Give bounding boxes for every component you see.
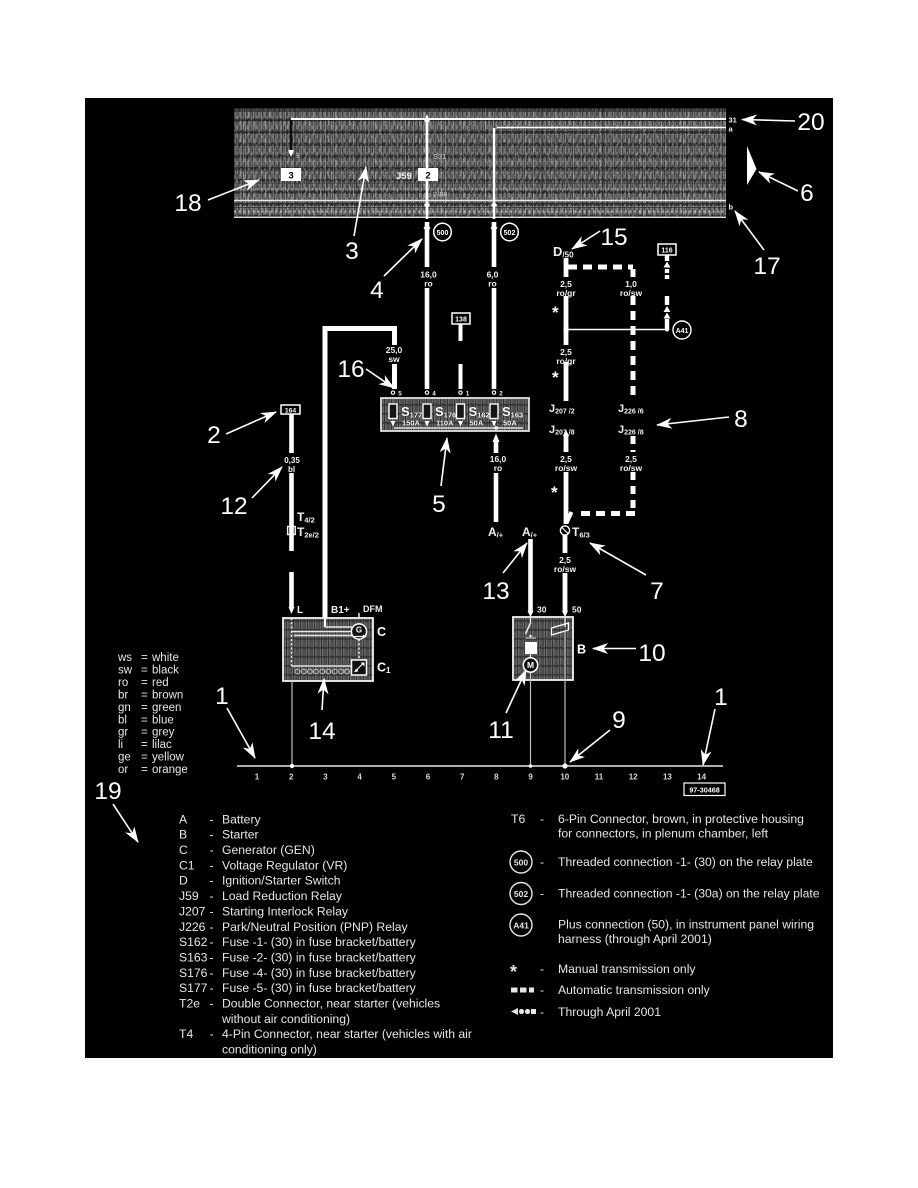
svg-text:138: 138 — [455, 317, 467, 324]
svg-text:10: 10 — [638, 640, 665, 667]
svg-text:A: A — [179, 812, 188, 826]
svg-text:C1: C1 — [179, 858, 195, 872]
svg-text:14: 14 — [308, 718, 335, 745]
svg-text:A41: A41 — [513, 921, 529, 931]
svg-text:blue: blue — [152, 714, 174, 726]
svg-text:8: 8 — [494, 773, 499, 782]
svg-text:-: - — [540, 983, 544, 997]
svg-text:1: 1 — [255, 773, 260, 782]
svg-text:1: 1 — [466, 390, 470, 397]
svg-text:4: 4 — [432, 390, 436, 397]
svg-text:gn: gn — [118, 702, 131, 714]
svg-text:3: 3 — [288, 171, 293, 182]
svg-text:Voltage Regulator (VR): Voltage Regulator (VR) — [222, 858, 347, 872]
svg-text:brown: brown — [152, 689, 183, 701]
svg-text:Double Connector, near starter: Double Connector, near starter (vehicles — [222, 997, 440, 1011]
svg-text:2: 2 — [207, 422, 221, 449]
svg-text:S176: S176 — [179, 966, 208, 980]
svg-text:Battery: Battery — [222, 812, 262, 826]
svg-text:-: - — [210, 920, 214, 934]
svg-text:ro: ro — [424, 279, 433, 289]
svg-text:M: M — [527, 660, 534, 670]
svg-text:502: 502 — [514, 889, 528, 899]
svg-text:ro/sw: ro/sw — [554, 564, 577, 574]
svg-text:ws: ws — [117, 652, 132, 664]
svg-text:50: 50 — [572, 605, 582, 615]
svg-text:=: = — [141, 714, 148, 726]
svg-text:14: 14 — [697, 773, 706, 782]
svg-text:500: 500 — [514, 858, 528, 868]
svg-text:J226: J226 — [179, 920, 206, 934]
svg-text:-: - — [210, 889, 214, 903]
svg-text:1: 1 — [714, 684, 728, 711]
svg-text:50A: 50A — [470, 419, 484, 428]
svg-text:Fuse -5- (30) in fuse bracket/: Fuse -5- (30) in fuse bracket/battery — [222, 981, 417, 995]
svg-text:gr: gr — [118, 727, 128, 739]
svg-text:=: = — [141, 764, 148, 776]
svg-text:conditioning only): conditioning only) — [222, 1043, 317, 1057]
svg-text:Plus connection (50), in instr: Plus connection (50), in instrument pane… — [558, 918, 814, 932]
svg-text:Generator (GEN): Generator (GEN) — [222, 843, 315, 857]
svg-text:ro: ro — [494, 463, 503, 473]
svg-text:*: * — [552, 368, 559, 387]
svg-text:ro: ro — [488, 279, 497, 289]
svg-text:Automatic transmission only: Automatic transmission only — [558, 983, 711, 997]
svg-text:-: - — [210, 904, 214, 918]
svg-text:9: 9 — [528, 773, 533, 782]
svg-text:4: 4 — [370, 277, 384, 304]
svg-text:-: - — [210, 935, 214, 949]
svg-text:li: li — [118, 739, 123, 751]
svg-text:J59: J59 — [396, 171, 412, 182]
svg-text:*: * — [551, 483, 558, 502]
svg-text:T2e: T2e — [179, 997, 200, 1011]
svg-text:Fuse -1- (30) in fuse bracket/: Fuse -1- (30) in fuse bracket/battery — [222, 935, 417, 949]
svg-text:10: 10 — [560, 773, 569, 782]
svg-text:-: - — [540, 887, 544, 901]
svg-text:0,35: 0,35 — [284, 456, 300, 465]
svg-text:C: C — [179, 843, 188, 857]
svg-text:Fuse -2- (30) in fuse bracket/: Fuse -2- (30) in fuse bracket/battery — [222, 950, 417, 964]
svg-text:500: 500 — [437, 230, 449, 237]
svg-text:Threaded connection -1- (30) o: Threaded connection -1- (30) on the rela… — [558, 855, 813, 869]
svg-text:97-30468: 97-30468 — [689, 786, 719, 795]
svg-text:8: 8 — [734, 406, 748, 433]
svg-text:J207: J207 — [179, 904, 206, 918]
svg-text:G: G — [356, 626, 362, 635]
svg-text:11: 11 — [488, 717, 513, 744]
svg-text:T6: T6 — [511, 812, 525, 826]
svg-text:12: 12 — [220, 493, 247, 520]
svg-text:or: or — [118, 764, 128, 776]
svg-text:B: B — [577, 643, 586, 657]
svg-text:5: 5 — [432, 491, 446, 518]
svg-text:lilac: lilac — [152, 739, 172, 751]
svg-text:Ignition/Starter Switch: Ignition/Starter Switch — [222, 874, 341, 888]
svg-text:116: 116 — [661, 248, 672, 255]
svg-text:18: 18 — [174, 190, 201, 217]
svg-text:502: 502 — [504, 230, 516, 237]
svg-text:=: = — [141, 689, 148, 701]
svg-text:L: L — [297, 605, 303, 616]
svg-text:*: * — [552, 303, 559, 322]
svg-text:-: - — [540, 812, 544, 826]
svg-text:4-Pin Connector, near starter: 4-Pin Connector, near starter (vehicles … — [222, 1027, 472, 1041]
svg-text:yellow: yellow — [152, 752, 185, 764]
svg-text:Starter: Starter — [222, 828, 259, 842]
svg-text:1: 1 — [215, 683, 229, 710]
svg-text:110A: 110A — [436, 419, 454, 428]
svg-text:ro/sw: ro/sw — [620, 288, 643, 298]
svg-text:=: = — [141, 752, 148, 764]
svg-text:15: 15 — [600, 224, 627, 251]
svg-text:2: 2 — [289, 773, 294, 782]
svg-text:12: 12 — [629, 773, 638, 782]
svg-text:white: white — [151, 652, 179, 664]
svg-text:-: - — [210, 843, 214, 857]
svg-text:Manual transmission only: Manual transmission only — [558, 962, 696, 976]
svg-text:S177: S177 — [179, 981, 208, 995]
svg-text:black: black — [152, 664, 179, 676]
svg-text:11: 11 — [595, 773, 604, 782]
svg-text:-: - — [210, 966, 214, 980]
svg-text:D: D — [179, 874, 188, 888]
svg-text:=: = — [141, 664, 148, 676]
svg-text:orange: orange — [152, 764, 188, 776]
svg-text:Park/Neutral Position (PNP) Re: Park/Neutral Position (PNP) Relay — [222, 920, 408, 934]
svg-text:ro/sw: ro/sw — [555, 463, 578, 473]
svg-text:-: - — [210, 997, 214, 1011]
svg-text:S163: S163 — [179, 950, 208, 964]
svg-text:b: b — [729, 203, 734, 212]
svg-text:2: 2 — [499, 390, 503, 397]
svg-text:9: 9 — [612, 707, 626, 734]
svg-text:=: = — [141, 739, 148, 751]
svg-text:br: br — [118, 689, 128, 701]
svg-text:B: B — [179, 828, 187, 842]
svg-text:31: 31 — [729, 116, 737, 125]
svg-text:sw: sw — [388, 354, 400, 364]
svg-text:-: - — [210, 828, 214, 842]
svg-text:9: 9 — [296, 153, 300, 160]
svg-text:6: 6 — [800, 180, 814, 207]
svg-text:19: 19 — [94, 778, 121, 805]
svg-text:Threaded connection -1- (30a): Threaded connection -1- (30a) on the rel… — [558, 887, 820, 901]
svg-text:-: - — [210, 812, 214, 826]
svg-text:ro/gr: ro/gr — [556, 356, 576, 366]
svg-text:A41: A41 — [676, 328, 689, 335]
svg-text:-: - — [210, 981, 214, 995]
svg-text:-: - — [210, 1027, 214, 1041]
svg-text:J59: J59 — [179, 889, 199, 903]
svg-text:2: 2 — [425, 171, 430, 182]
svg-text:Through April 2001: Through April 2001 — [558, 1005, 661, 1019]
svg-text:-: - — [210, 950, 214, 964]
svg-text:without air conditioning): without air conditioning) — [221, 1012, 350, 1026]
svg-text:150A: 150A — [402, 419, 421, 428]
svg-text:DFM: DFM — [363, 604, 383, 614]
svg-text:4: 4 — [357, 773, 362, 782]
svg-text:S162: S162 — [179, 935, 208, 949]
svg-text:ro: ro — [118, 677, 128, 689]
svg-text:13: 13 — [663, 773, 672, 782]
svg-text:S31: S31 — [433, 152, 446, 161]
svg-text:Fuse -4- (30) in fuse bracket/: Fuse -4- (30) in fuse bracket/battery — [222, 966, 417, 980]
svg-text:6-Pin Connector, brown, in pro: 6-Pin Connector, brown, in protective ho… — [558, 812, 804, 826]
svg-text:Load Reduction Relay: Load Reduction Relay — [222, 889, 343, 903]
svg-text:5: 5 — [392, 773, 397, 782]
svg-text:2/88: 2/88 — [433, 190, 448, 199]
svg-text:-: - — [540, 855, 544, 869]
svg-text:5: 5 — [398, 390, 402, 397]
svg-text:for connectors, in plenum cham: for connectors, in plenum chamber, left — [558, 826, 769, 840]
svg-text:Starting Interlock Relay: Starting Interlock Relay — [222, 904, 349, 918]
svg-text:164: 164 — [285, 408, 297, 415]
svg-text:17: 17 — [753, 253, 780, 280]
svg-text:=: = — [141, 677, 148, 689]
svg-text:T4: T4 — [179, 1027, 193, 1041]
svg-text:50A: 50A — [503, 419, 517, 428]
svg-text:*: * — [510, 962, 517, 982]
svg-text:B1+: B1+ — [331, 605, 350, 616]
svg-text:-: - — [210, 874, 214, 888]
svg-text:sw: sw — [118, 664, 133, 676]
svg-text:30: 30 — [537, 605, 547, 615]
svg-text:ro/sw: ro/sw — [620, 463, 643, 473]
svg-text:16: 16 — [337, 356, 364, 383]
svg-text:=: = — [141, 702, 148, 714]
svg-text:ge: ge — [118, 752, 131, 764]
svg-text:6: 6 — [426, 773, 431, 782]
svg-text:-: - — [210, 858, 214, 872]
svg-text:13: 13 — [482, 578, 509, 605]
svg-text:grey: grey — [152, 727, 175, 739]
svg-text:7: 7 — [650, 578, 664, 605]
svg-text:3: 3 — [345, 238, 359, 265]
svg-text:green: green — [152, 702, 181, 714]
svg-text:red: red — [152, 677, 169, 689]
svg-text:-: - — [540, 962, 544, 976]
svg-text:harness (through April 2001): harness (through April 2001) — [558, 932, 712, 946]
svg-text:=: = — [141, 652, 148, 664]
svg-text:C: C — [377, 625, 386, 639]
svg-text:bl: bl — [118, 714, 127, 726]
svg-text:ro/gr: ro/gr — [556, 288, 576, 298]
svg-text:-: - — [540, 1005, 544, 1019]
svg-text:20: 20 — [797, 109, 824, 136]
svg-text:=: = — [141, 727, 148, 739]
svg-text:bl: bl — [288, 465, 295, 474]
svg-text:7: 7 — [460, 773, 465, 782]
svg-text:3: 3 — [323, 773, 328, 782]
